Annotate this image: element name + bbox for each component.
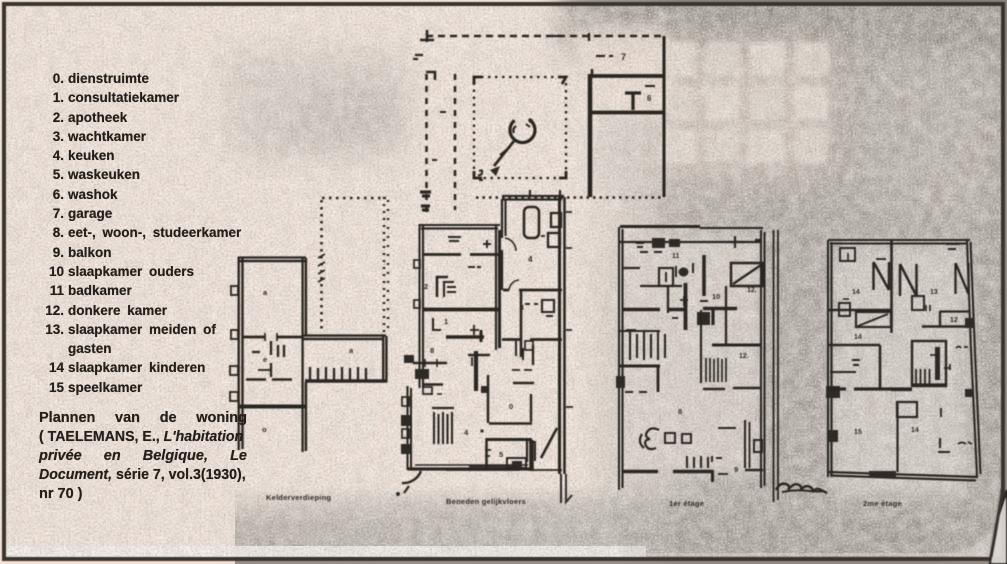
svg-text:11: 11 [672, 253, 680, 260]
svg-text:1: 1 [444, 317, 448, 326]
svg-text:9: 9 [734, 465, 738, 474]
svg-text:o: o [262, 425, 267, 434]
svg-text:4: 4 [528, 255, 533, 264]
svg-text:12.: 12. [739, 353, 749, 360]
svg-text:8: 8 [678, 407, 682, 416]
svg-text:10: 10 [712, 292, 720, 301]
svg-text:12.: 12. [747, 287, 757, 294]
svg-text:12: 12 [950, 317, 958, 324]
svg-text:0: 0 [509, 402, 513, 411]
svg-text:13: 13 [930, 289, 938, 296]
svg-text:3: 3 [520, 305, 524, 312]
svg-text:15: 15 [854, 429, 862, 436]
svg-text:14: 14 [854, 334, 862, 341]
svg-text:2: 2 [424, 282, 428, 291]
svg-text:14: 14 [911, 427, 919, 434]
svg-text:14: 14 [852, 289, 860, 296]
svg-text:5: 5 [499, 450, 503, 459]
svg-text:8: 8 [430, 346, 434, 355]
svg-text:6: 6 [647, 94, 652, 103]
svg-text:7: 7 [621, 52, 626, 62]
